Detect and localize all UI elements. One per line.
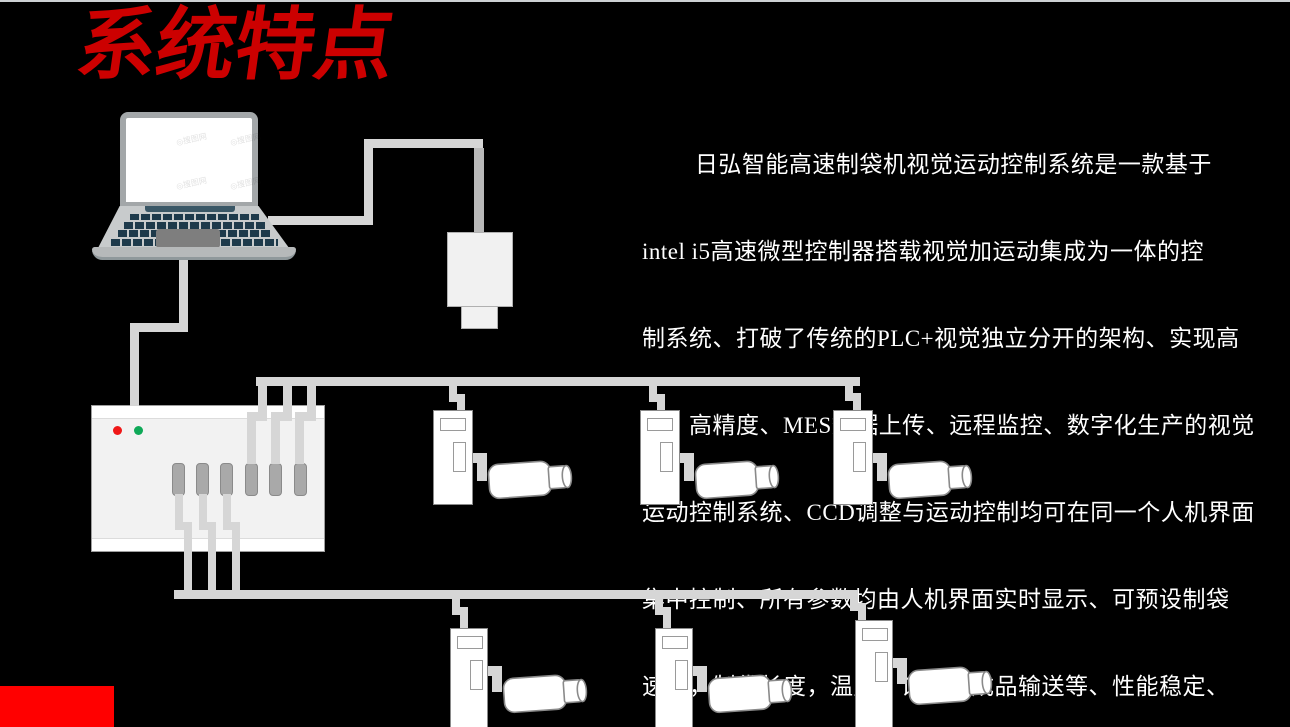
cable-bus-controller-stub-1 xyxy=(258,377,267,406)
laptop-touchpad xyxy=(156,229,220,248)
driver-port-top xyxy=(662,636,688,649)
laptop-hinge xyxy=(145,206,235,212)
watermark-text: ◎搜图网 xyxy=(229,131,262,148)
intro-line: intel i5高速微型控制器搭载视觉加运动集成为一体的控 xyxy=(642,237,1290,266)
cable-controller-internal xyxy=(271,412,280,464)
servo-motor-bottom-2 xyxy=(706,670,798,718)
driver-port-side xyxy=(453,442,466,472)
laptop-computer: ◎搜图网 ◎搜图网 ◎搜图网 ◎搜图网 xyxy=(88,105,298,263)
driver-port-side xyxy=(470,660,483,690)
intro-line: 日弘智能高速制袋机视觉运动控制系统是一款基于 xyxy=(642,150,1290,179)
cable-laptop-controller-v1 xyxy=(179,255,188,332)
driver-port-top xyxy=(647,418,673,431)
intro-paragraph: 日弘智能高速制袋机视觉运动控制系统是一款基于 intel i5高速微型控制器搭载… xyxy=(642,92,1290,727)
cable-bus-controller-stub-2 xyxy=(283,377,292,406)
ccd-camera-body xyxy=(447,232,513,307)
controller-slot-2 xyxy=(196,463,209,496)
cable-drop-driver-bottom-3 xyxy=(858,603,866,621)
cable-bottom-bus xyxy=(174,590,858,599)
driver-port-side xyxy=(660,442,673,472)
driver-unit-top-1 xyxy=(433,410,473,505)
cable-drop-driver-top-3 xyxy=(853,393,861,411)
laptop-screen: ◎搜图网 ◎搜图网 ◎搜图网 ◎搜图网 xyxy=(120,112,258,208)
driver-unit-bottom-2 xyxy=(655,628,693,727)
cable-controller-internal xyxy=(295,412,304,464)
controller-slot-5 xyxy=(269,463,282,496)
watermark-text: ◎搜图网 xyxy=(175,175,208,192)
keyboard-row xyxy=(124,222,265,229)
accent-red-block xyxy=(0,686,114,727)
ccd-camera-lens xyxy=(461,306,498,329)
keyboard-row xyxy=(130,214,259,220)
cable-drop-driver-bottom-1 xyxy=(460,607,468,629)
driver-port-top xyxy=(840,418,866,431)
driver-port-side xyxy=(853,442,866,472)
slide: 系统特点 日弘智能高速制袋机视觉运动控制系统是一款基于 intel i5高速微型… xyxy=(0,0,1290,727)
driver-port-top xyxy=(457,636,483,649)
driver-unit-top-2 xyxy=(640,410,680,505)
driver-unit-bottom-3 xyxy=(855,620,893,727)
driver-unit-bottom-1 xyxy=(450,628,488,727)
watermark-text: ◎搜图网 xyxy=(175,131,208,148)
cable-top-bus xyxy=(256,377,860,386)
cable-drop-driver-top-1 xyxy=(457,394,465,411)
page-title: 系统特点 xyxy=(72,4,400,87)
cable-slot-down-2 xyxy=(208,522,216,596)
servo-motor-top-3 xyxy=(886,456,978,504)
cable-laptop-camera-h2 xyxy=(364,139,483,148)
cable-laptop-camera-v1 xyxy=(364,139,373,225)
intro-line: 制系统、打破了传统的PLC+视觉独立分开的架构、实现高 xyxy=(642,324,1290,353)
driver-port-top xyxy=(862,628,888,641)
cable-bus-controller-stub-3 xyxy=(307,377,316,406)
servo-motor-bottom-1 xyxy=(501,670,593,718)
controller-slot-4 xyxy=(245,463,258,496)
cable-laptop-controller-v2 xyxy=(130,323,139,406)
driver-port-top xyxy=(440,418,466,431)
servo-motor-top-1 xyxy=(486,456,578,504)
cable-camera-drop xyxy=(474,148,484,233)
controller-slot-6 xyxy=(294,463,307,496)
cable-controller-internal xyxy=(247,412,256,464)
controller-slot-3 xyxy=(220,463,233,496)
laptop-base xyxy=(92,247,296,260)
driver-unit-top-3 xyxy=(833,410,873,505)
cable-drop-driver-top-2 xyxy=(657,394,665,411)
status-led-green xyxy=(134,426,143,435)
driver-port-side xyxy=(675,660,688,690)
controller-slot-1 xyxy=(172,463,185,496)
cable-slot-down-1 xyxy=(184,522,192,596)
driver-port-side xyxy=(875,652,888,682)
cable-drop-driver-bottom-2 xyxy=(663,607,671,629)
servo-motor-bottom-3 xyxy=(906,662,998,710)
intro-line: 速、高精度、MES数据上传、远程监控、数字化生产的视觉 xyxy=(642,411,1290,440)
servo-motor-top-2 xyxy=(693,456,785,504)
cable-slot-down-3 xyxy=(232,522,240,596)
power-led-red xyxy=(113,426,122,435)
watermark-text: ◎搜图网 xyxy=(229,175,262,192)
